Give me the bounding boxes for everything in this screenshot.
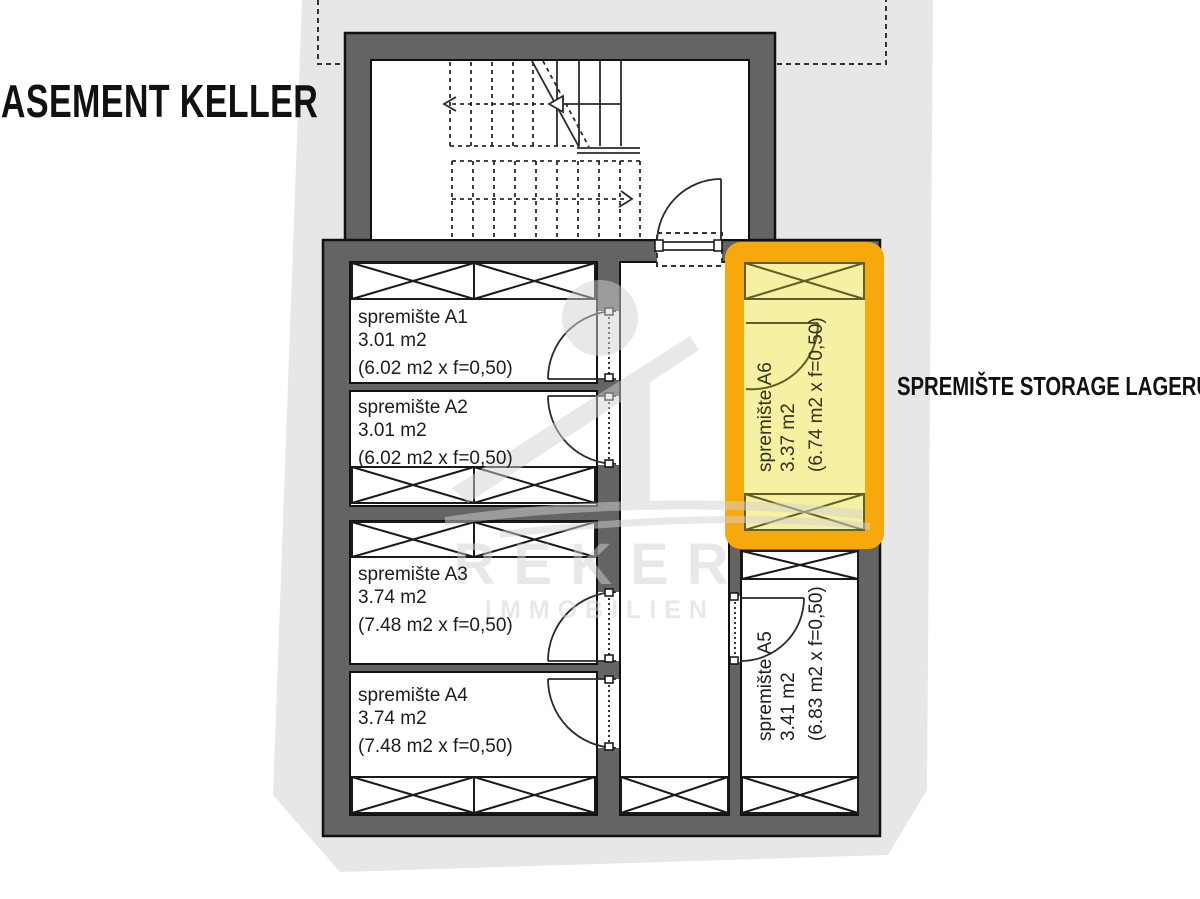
room-a2-area: 3.01 m2 [358,419,513,442]
room-a3-label: spremište A3 3.74 m2 (7.48 m2 x f=0,50) [358,563,513,637]
room-a6-name: spremište A6 [754,252,777,472]
legend-line-hr: SPREMIŠTE [897,371,1014,401]
room-a1-label: spremište A1 3.01 m2 (6.02 m2 x f=0,50) [358,306,513,380]
room-a5-name: spremište A5 [754,521,777,741]
watermark-subtitle: IMMOBILIEN [485,596,715,624]
room-a1-name: spremište A1 [358,306,513,329]
watermark-logo-stem [622,373,650,508]
watermark-logo-dot [562,280,638,356]
room-a2-name: spremište A2 [358,396,513,419]
stairwell-floor [371,60,749,240]
floor-title-line-en: BASEMENT [0,75,170,127]
room-a6-area: 3.37 m2 [777,252,800,472]
room-a1-formula: (6.02 m2 x f=0,50) [358,357,513,380]
room-a5-label: spremište A5 3.41 m2 (6.83 m2 x f=0,50) [754,521,828,741]
room-a2-label: spremište A2 3.01 m2 (6.02 m2 x f=0,50) [358,396,513,470]
room-a2-formula: (6.02 m2 x f=0,50) [358,447,513,470]
room-a4-label: spremište A4 3.74 m2 (7.48 m2 x f=0,50) [358,684,513,758]
room-a5-formula: (6.83 m2 x f=0,50) [805,521,828,741]
room-a1-area: 3.01 m2 [358,329,513,352]
room-a3-formula: (7.48 m2 x f=0,50) [358,614,513,637]
floor-plan-page: REKER IMMOBILIEN PODRUM BASEMENT KELLER … [0,0,1200,899]
floor-title-line-de: KELLER [180,75,318,127]
floor-title: PODRUM BASEMENT KELLER [0,76,318,127]
room-a4-area: 3.74 m2 [358,707,513,730]
room-a6-formula: (6.74 m2 x f=0,50) [805,252,828,472]
room-a5-area: 3.41 m2 [777,521,800,741]
room-a6-label: spremište A6 3.37 m2 (6.74 m2 x f=0,50) [754,252,828,472]
floor-plan-svg: REKER IMMOBILIEN [0,0,1200,899]
legend-line-en: STORAGE [1020,371,1120,401]
room-a3-name: spremište A3 [358,563,513,586]
room-a3-area: 3.74 m2 [358,586,513,609]
storage-legend: SPREMIŠTE STORAGE LAGERUNG [897,372,1200,400]
room-a4-name: spremište A4 [358,684,513,707]
room-a4-formula: (7.48 m2 x f=0,50) [358,735,513,758]
legend-line-de: LAGERUNG [1125,371,1200,401]
